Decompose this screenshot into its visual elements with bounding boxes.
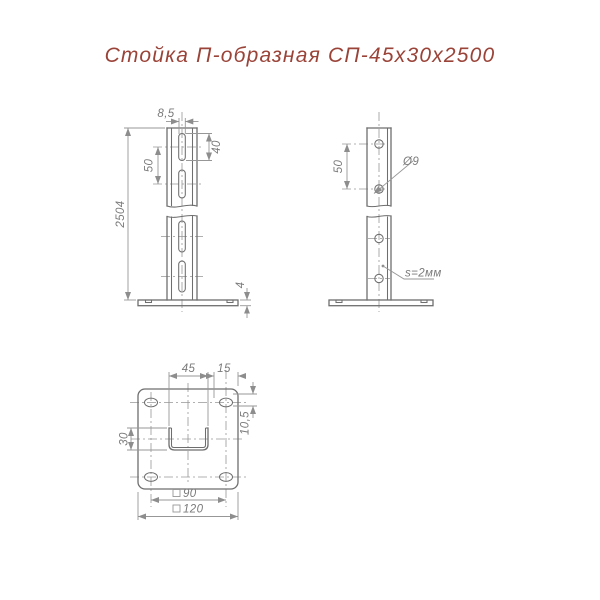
square-symbol (173, 505, 180, 512)
plate-hole-mark (227, 300, 233, 303)
plate-hole-mark (421, 300, 427, 303)
hole-diameter-label: Ø9 (402, 156, 419, 168)
drawing-page: Стойка П-образная СП-45х30х2500 (0, 0, 600, 600)
dim-slot-spacing: 50 (144, 159, 156, 173)
dim-hole-height: 10,5 (240, 411, 252, 435)
dim-plate-thickness: 4 (235, 282, 247, 289)
front-view: 8,5 40 50 2504 4 (115, 108, 251, 318)
dim-total-height: 2504 (115, 200, 127, 228)
dim-plate-square: 120 (183, 504, 204, 516)
page-title: Стойка П-образная СП-45х30х2500 (105, 44, 496, 67)
wall-thickness-label: s=2мм (405, 268, 442, 280)
dim-slot-length: 40 (211, 140, 223, 154)
dimensions-front: 8,5 40 50 2504 4 (115, 108, 251, 318)
dim-channel-depth: 30 (119, 432, 131, 446)
plate-hole-mark (146, 300, 152, 303)
square-symbol (173, 490, 180, 497)
technical-drawing: Стойка П-образная СП-45х30х2500 (0, 0, 600, 600)
base-plate-front (138, 300, 238, 306)
centerlines-bottom (130, 370, 246, 507)
dim-edge-offset: 15 (217, 363, 231, 375)
bottom-view: 45 15 10,5 30 90 120 (119, 363, 258, 520)
base-plate-side (329, 300, 433, 306)
dim-channel-width: 45 (182, 363, 196, 375)
centerlines-front (153, 112, 203, 312)
dim-slot-width: 8,5 (157, 108, 174, 120)
side-view: 50 Ø9 s=2мм (329, 112, 442, 312)
plate-hole-mark (336, 300, 342, 303)
dim-hole-spacing: 50 (333, 160, 345, 174)
dim-hole-square: 90 (183, 488, 197, 500)
